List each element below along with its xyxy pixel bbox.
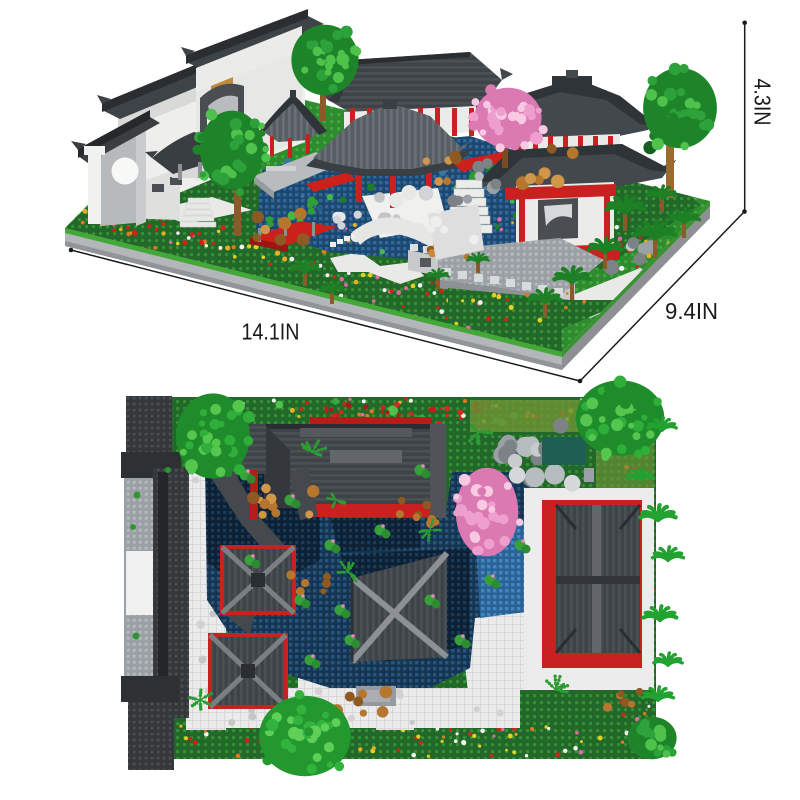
svg-text:9.4IN: 9.4IN	[665, 298, 718, 324]
svg-text:4.3IN: 4.3IN	[750, 79, 776, 126]
svg-text:14.1IN: 14.1IN	[242, 319, 300, 345]
